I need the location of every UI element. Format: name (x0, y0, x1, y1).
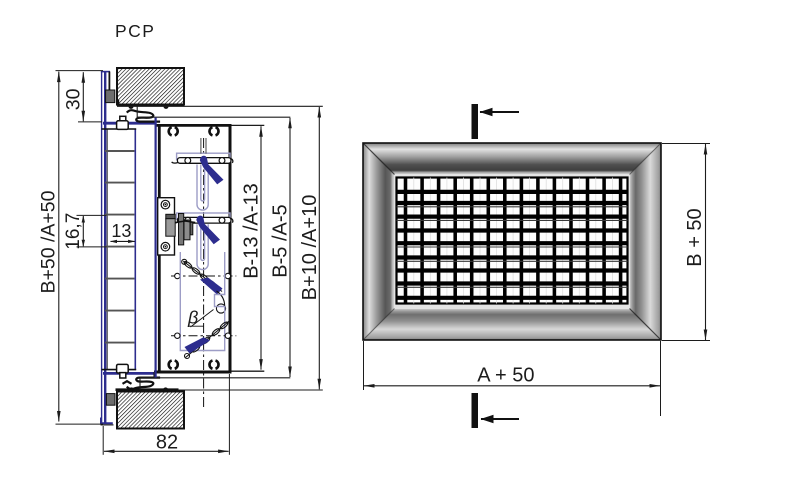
svg-text:16,7: 16,7 (63, 213, 84, 250)
svg-text:β: β (187, 308, 198, 328)
svg-text:B-13 /A-13: B-13 /A-13 (240, 183, 262, 279)
svg-text:B + 50: B + 50 (684, 208, 706, 266)
svg-text:PCP: PCP (115, 21, 155, 41)
svg-text:82: 82 (156, 431, 178, 453)
svg-text:30: 30 (63, 88, 85, 110)
svg-text:B+50 /A+50: B+50 /A+50 (38, 190, 60, 293)
svg-text:B-5 /A-5: B-5 /A-5 (269, 204, 291, 277)
svg-text:B+10 /A+10: B+10 /A+10 (299, 195, 321, 301)
svg-text:13: 13 (111, 221, 131, 241)
svg-text:A + 50: A + 50 (477, 365, 534, 387)
